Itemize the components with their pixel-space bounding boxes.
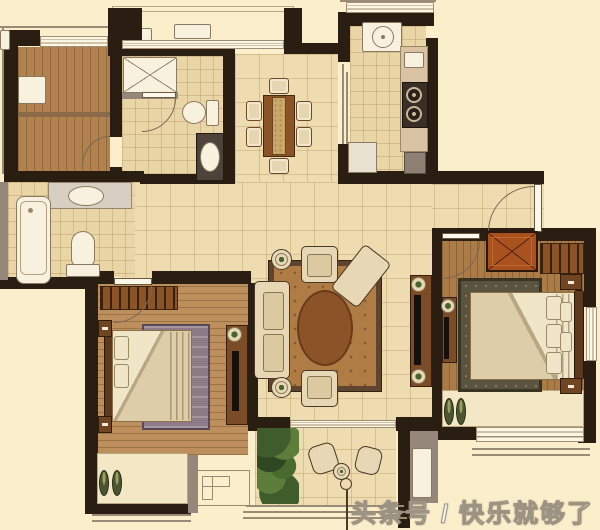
kitchen-cabinet [404,152,426,174]
vanity-basin [68,186,104,206]
sofa-cushion [263,334,284,372]
armchair-cushion [307,376,332,399]
window [586,307,597,361]
wall-pillar [284,8,302,48]
slipper-icon [112,470,122,496]
window [122,40,284,49]
tv [414,295,421,365]
dining-chair [269,78,289,94]
headboard [574,290,584,380]
sliding-door-line [342,64,344,144]
wall-segment [440,171,544,184]
plant-icon [411,277,426,292]
tv [444,317,449,359]
wall-segment [584,361,596,427]
sofa-cushion [263,292,284,330]
shower-tray [123,57,177,93]
sliding-door-line [346,72,348,144]
slipper-icon [99,470,109,496]
wall-segment [396,417,436,431]
desk [18,76,46,104]
outline-line [0,26,112,28]
toilet-tank [66,264,100,277]
nightstand [98,416,112,433]
nightstand [98,320,112,337]
area-rug-medallion [297,290,353,366]
slipper-icon [456,398,466,425]
dining-chair [246,101,262,121]
pillow [114,336,129,360]
dining-chair [296,101,312,121]
plant-icon [275,381,288,394]
nightstand [560,378,582,394]
pillow [560,302,572,322]
window [346,2,434,13]
plant-icon [441,299,455,313]
dining-chair [246,127,262,147]
toilet-bowl [182,101,206,124]
wall-segment [98,271,114,284]
pillow [114,364,129,388]
fridge [348,142,377,173]
closet-rack [540,243,584,274]
wall-segment [110,105,122,137]
nightstand [560,274,582,290]
wall-segment [110,47,122,105]
wall-gray-segment [0,182,8,280]
wall-segment [584,241,596,307]
plant-icon [275,253,288,266]
plants-icon [257,428,299,504]
wall-segment [110,167,122,182]
wardrobe-inner [492,237,532,266]
slipper-icon [444,398,454,425]
dining-chair [269,158,289,174]
plant-icon [337,467,346,476]
ac-outdoor-unit [202,476,213,500]
railing-line [92,520,191,522]
wall-segment [4,30,18,174]
pillow [546,352,562,374]
door-leaf [114,278,152,285]
ac-unit [174,24,211,39]
dining-chair [296,127,312,147]
plant-icon [227,327,242,342]
sink-drain [381,35,385,39]
railing-line [472,454,590,456]
door-leaf [442,233,480,239]
balcony-sliding-door [290,420,396,428]
wall-segment [152,271,251,284]
bed-sheet-stripes [170,332,192,420]
wall-segment [223,56,235,184]
entry-door-leaf [534,184,542,232]
toilet-tank [206,100,219,126]
interior-divider [18,112,110,117]
window [40,36,108,47]
pillow [560,332,572,352]
burner [406,87,422,103]
bathtub-inner [20,201,47,275]
wall-segment [4,171,144,182]
wall-segment [85,503,191,514]
burner [406,106,422,122]
utility-appliance [412,448,432,498]
tv [232,351,239,411]
wash-basin [200,142,220,172]
window [0,30,10,50]
wall-segment [338,12,350,62]
bay-window-bench [97,453,188,504]
watermark: 头条号 / 快乐就够了 [351,494,594,530]
floor-plan: 头条号 / 快乐就够了 [0,0,600,530]
bathtub-drain [28,208,33,213]
wall-segment [432,241,442,431]
table-runner [272,97,286,155]
counter-appliance [404,52,424,68]
toilet-bowl [71,231,95,267]
annotation-leader-line [346,490,348,530]
annotation-circle [340,478,352,490]
window [476,427,584,442]
wall-segment [432,425,476,440]
railing-line [92,514,191,516]
armchair-cushion [307,254,332,277]
railing-line [472,448,590,450]
plant-icon [411,369,426,384]
